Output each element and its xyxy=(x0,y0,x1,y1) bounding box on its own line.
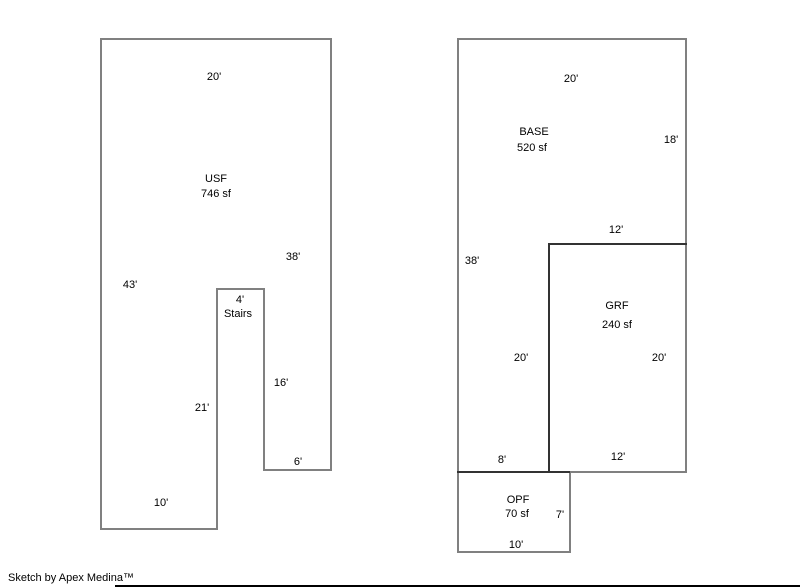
base-bottom-width-dim: 8' xyxy=(498,454,506,466)
usf-leg-inner-height-dim: 16' xyxy=(274,377,288,389)
base-outline xyxy=(458,39,686,472)
opf-label: OPF xyxy=(507,494,530,506)
grf-top-width-dim: 12' xyxy=(609,224,623,236)
base-right-upper-height-dim: 18' xyxy=(664,134,678,146)
usf-bottom-width-dim: 10' xyxy=(154,497,168,509)
grf-label: GRF xyxy=(605,300,629,312)
usf-leg-bottom-width-dim: 6' xyxy=(294,456,302,468)
base-top-width-dim: 20' xyxy=(564,73,578,85)
base-label: BASE xyxy=(519,126,548,138)
stairs-label: Stairs xyxy=(224,308,253,320)
usf-right-height-dim: 38' xyxy=(286,251,300,263)
grf-bottom-width-dim: 12' xyxy=(611,451,625,463)
usf-notch-height-dim: 21' xyxy=(195,402,209,414)
usf-area-label: 746 sf xyxy=(201,188,232,200)
floorplan-sketch: 20' USF 746 sf 38' 43' 4' Stairs 16' 21'… xyxy=(0,0,800,587)
opf-area-label: 70 sf xyxy=(505,508,530,520)
grf-wall xyxy=(549,244,687,473)
base-area-label: 520 sf xyxy=(517,142,548,154)
opf-bottom-width-dim: 10' xyxy=(509,539,523,551)
grf-right-height-dim: 20' xyxy=(652,352,666,364)
stairs-width-dim: 4' xyxy=(236,294,244,306)
opf-right-height-dim: 7' xyxy=(556,509,564,521)
usf-top-width-dim: 20' xyxy=(207,71,221,83)
sketch-credit: Sketch by Apex Medina™ xyxy=(8,572,134,584)
usf-label: USF xyxy=(205,173,227,185)
grf-area-label: 240 sf xyxy=(602,319,633,331)
sketch-page: 20' USF 746 sf 38' 43' 4' Stairs 16' 21'… xyxy=(0,0,800,587)
base-inner-height-dim: 20' xyxy=(514,352,528,364)
base-left-height-dim: 38' xyxy=(465,255,479,267)
usf-left-height-dim: 43' xyxy=(123,279,137,291)
